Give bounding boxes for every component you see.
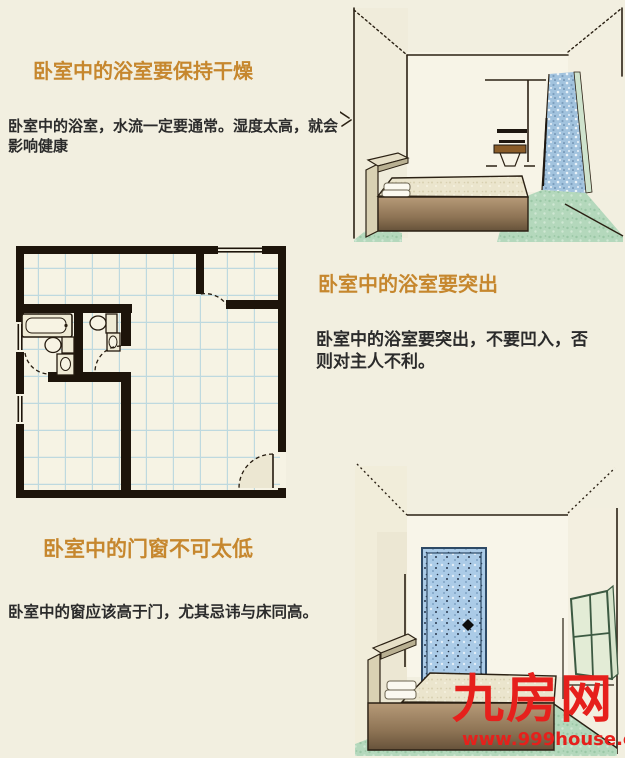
section3-body-line1: 卧室中的窗应该高于门，尤其忌讳与床同高。 — [8, 602, 318, 622]
sink — [57, 354, 74, 375]
watermark-site-name: 九房网 — [452, 672, 614, 729]
pillow — [385, 690, 416, 699]
section2-body-line2: 则对主人不利。 — [316, 351, 588, 373]
section1-body: 卧室中的浴室，水流一定要通常。湿度太高，就会 影响健康 — [8, 116, 338, 156]
section3-body: 卧室中的窗应该高于门，尤其忌讳与床同高。 — [8, 602, 318, 622]
section2-body: 卧室中的浴室要突出，不要凹入，否 则对主人不利。 — [316, 329, 588, 373]
bathtub — [22, 314, 72, 337]
bedroom-bathroom-illustration — [340, 0, 625, 248]
section1-body-line2: 影响健康 — [8, 136, 338, 156]
infographic-canvas: 卧室中的浴室要保持干燥 卧室中的浴室，水流一定要通常。湿度太高，就会 影响健康 … — [0, 0, 625, 758]
section1-title: 卧室中的浴室要保持干燥 — [33, 55, 253, 84]
pillow — [387, 681, 416, 690]
section1-body-line1: 卧室中的浴室，水流一定要通常。湿度太高，就会 — [8, 116, 338, 136]
floor-plan-diagram — [12, 242, 290, 502]
section3-title: 卧室中的门窗不可太低 — [43, 533, 253, 563]
pillow — [382, 190, 410, 197]
section2-body-line1: 卧室中的浴室要突出，不要凹入，否 — [316, 329, 588, 351]
watermark-site-url: www.999house.com — [462, 729, 625, 750]
section2-title: 卧室中的浴室要突出 — [318, 268, 498, 297]
cropped-glyph-mark — [340, 112, 351, 126]
